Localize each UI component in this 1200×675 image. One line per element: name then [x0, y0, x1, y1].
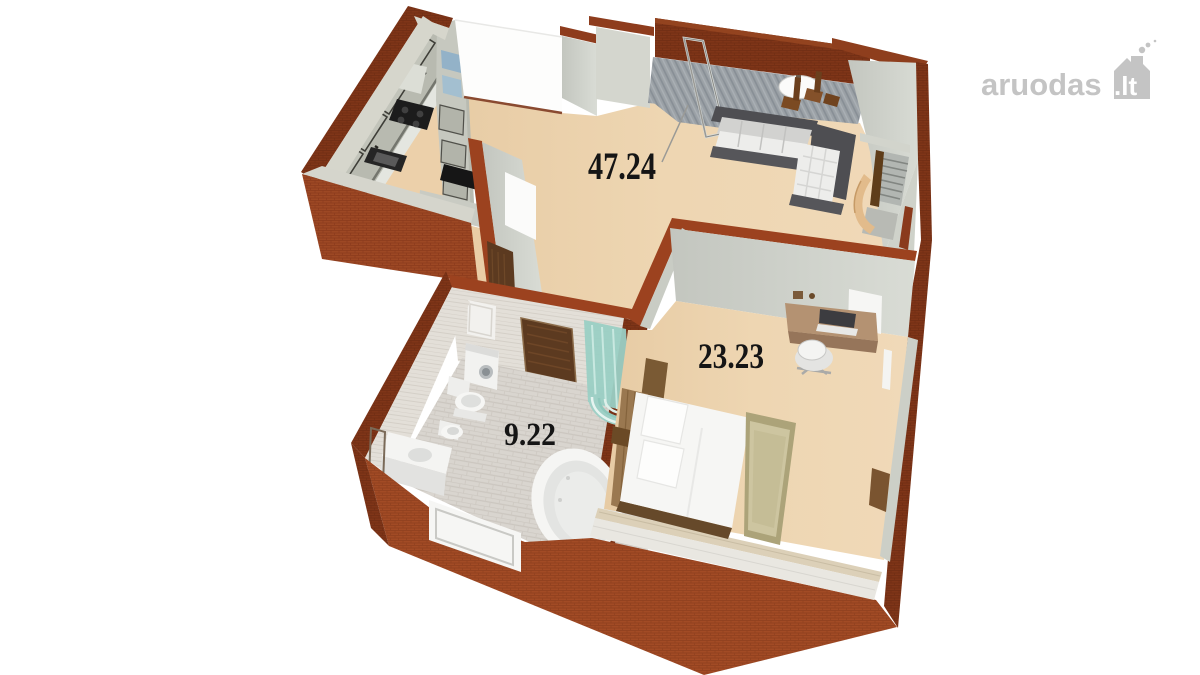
svg-text:aruodas: aruodas — [981, 67, 1102, 102]
svg-text:9.22: 9.22 — [504, 417, 556, 453]
svg-text:.lt: .lt — [1114, 71, 1137, 101]
svg-text:47.24: 47.24 — [588, 145, 656, 188]
svg-text:23.23: 23.23 — [698, 336, 764, 376]
